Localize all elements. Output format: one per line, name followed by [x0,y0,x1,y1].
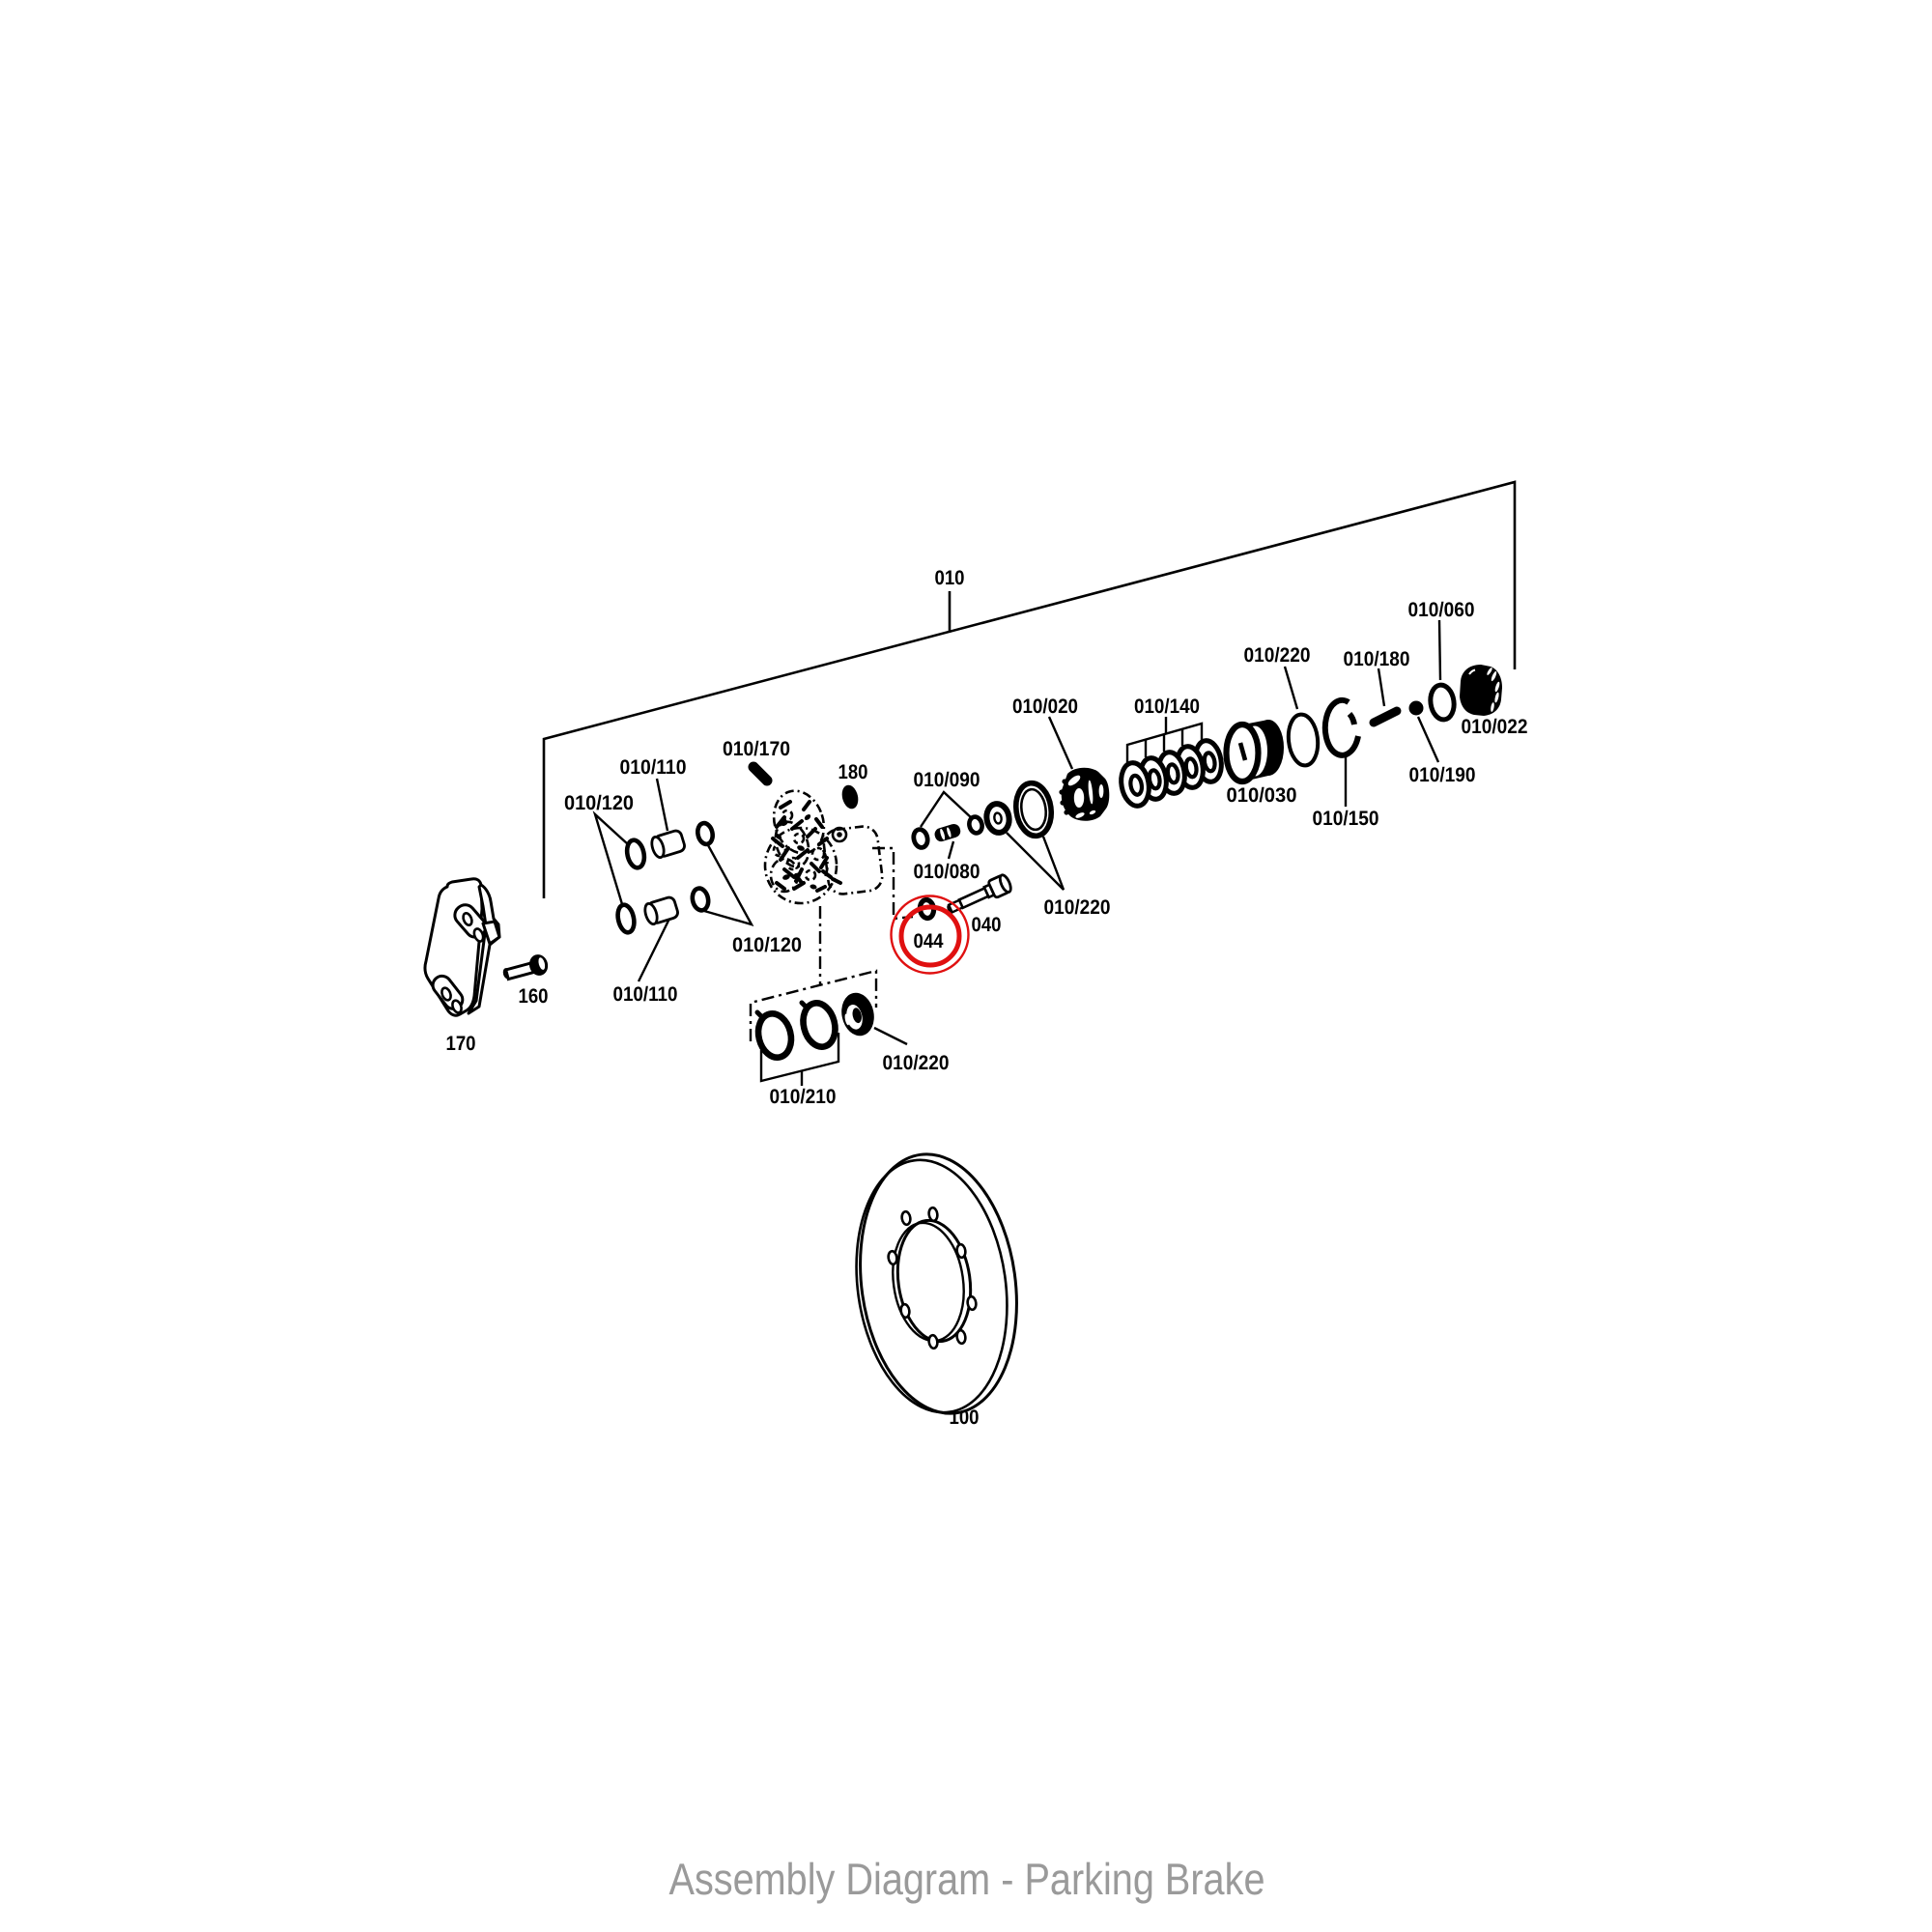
svg-text:040: 040 [972,914,1002,936]
svg-text:010/020: 010/020 [1012,696,1078,718]
svg-text:170: 170 [446,1033,476,1055]
svg-text:010/190: 010/190 [1409,764,1476,786]
svg-text:010/220: 010/220 [883,1052,950,1074]
svg-text:010/180: 010/180 [1344,648,1410,670]
svg-text:010/030: 010/030 [1227,784,1297,807]
svg-text:010/210: 010/210 [770,1086,837,1108]
svg-text:010/060: 010/060 [1408,599,1475,621]
svg-text:010/220: 010/220 [1244,644,1311,667]
svg-text:010/080: 010/080 [914,861,980,883]
svg-text:010/140: 010/140 [1134,696,1200,718]
svg-text:Assembly Diagram - Parking Bra: Assembly Diagram - Parking Brake [669,1854,1265,1904]
svg-text:010/090: 010/090 [914,769,980,791]
svg-text:160: 160 [519,985,549,1008]
svg-text:044: 044 [914,930,944,952]
svg-text:180: 180 [838,761,868,783]
svg-text:010/110: 010/110 [613,983,678,1006]
svg-text:010/170: 010/170 [723,738,790,760]
svg-text:010/120: 010/120 [564,792,634,814]
svg-text:010: 010 [935,567,965,589]
svg-text:010/120: 010/120 [732,934,802,956]
svg-text:010/110: 010/110 [620,756,687,779]
svg-text:010/220: 010/220 [1044,896,1111,919]
svg-text:010/022: 010/022 [1462,716,1528,738]
svg-text:010/150: 010/150 [1313,808,1379,830]
